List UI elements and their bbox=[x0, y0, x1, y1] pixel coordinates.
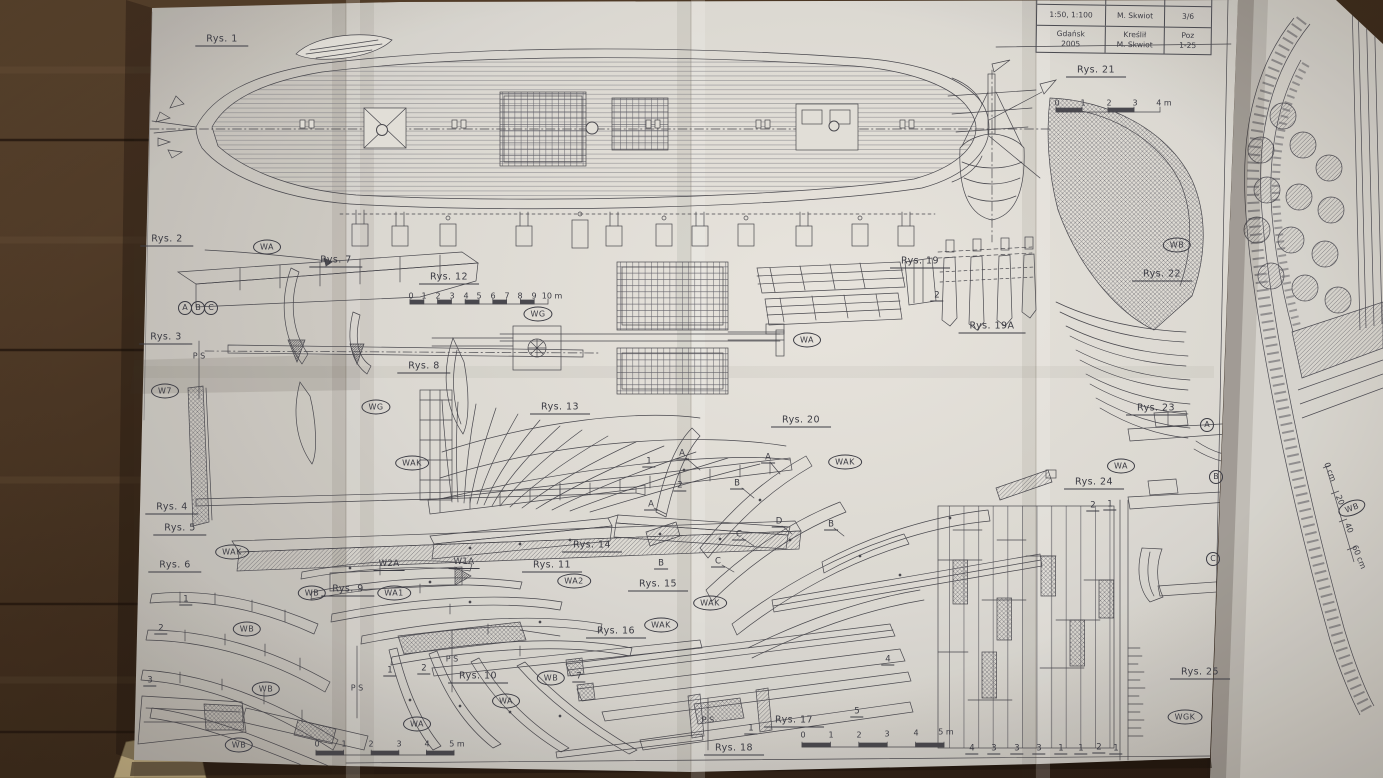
title-block-sheet-value: 3/6 bbox=[1164, 7, 1211, 28]
title-block-scale-value: 1:50, 1:100 bbox=[1037, 5, 1105, 26]
title-block-city-year: Gdańsk 2005 bbox=[1037, 26, 1105, 53]
plan-sheet-artwork bbox=[0, 0, 1383, 778]
title-block-drafter-label: Kreślił bbox=[1123, 30, 1146, 40]
photo-of-ship-plan-sheet: Rys. 1Rys. 2Rys. 7Rys. 3Rys. 12Rys. 8Rys… bbox=[0, 0, 1383, 778]
title-block-poz-range: 1-25 bbox=[1179, 41, 1196, 51]
title-block-city: Gdańsk bbox=[1057, 29, 1085, 39]
title-block-bottom-row: Gdańsk 2005 Kreślił M. Skwiot Poz 1-25 bbox=[1037, 25, 1211, 54]
title-block-drafter: Kreślił M. Skwiot bbox=[1105, 27, 1164, 54]
title-block-values-row: 1:50, 1:100 M. Skwiot 3/6 bbox=[1037, 4, 1211, 27]
title-block-poz-label: Poz bbox=[1181, 31, 1194, 41]
title-block: Skala Opracował Arkusz 1:50, 1:100 M. Sk… bbox=[1036, 0, 1213, 55]
title-block-positions: Poz 1-25 bbox=[1164, 28, 1211, 55]
photo-warm-tint bbox=[0, 0, 1383, 778]
title-block-author-value: M. Skwiot bbox=[1105, 6, 1164, 27]
title-block-drafter-name: M. Skwiot bbox=[1117, 40, 1153, 51]
title-block-year: 2005 bbox=[1061, 39, 1080, 49]
